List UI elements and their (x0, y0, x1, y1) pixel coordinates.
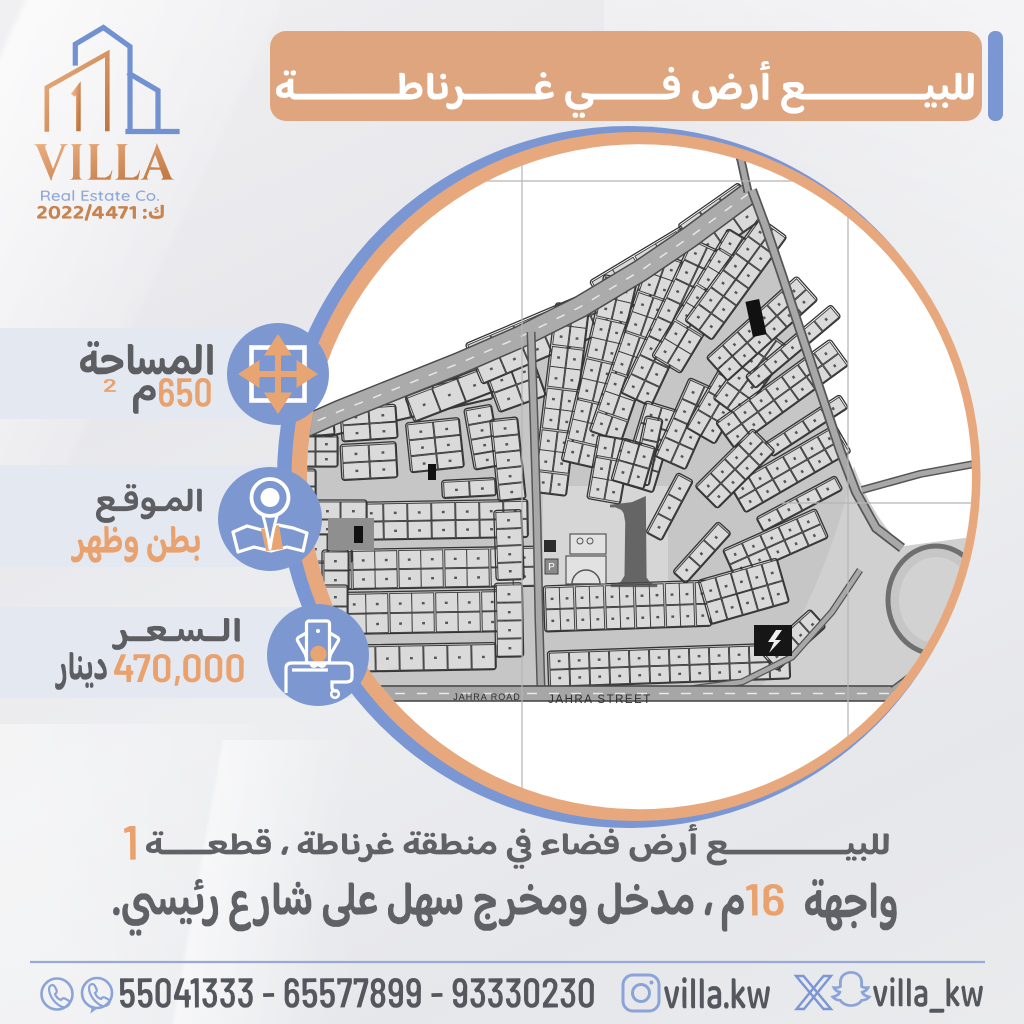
svg-text:JAHRA STREET: JAHRA STREET (548, 694, 652, 706)
svg-text:P: P (548, 562, 555, 573)
svg-text:JAHRA ROAD: JAHRA ROAD (453, 692, 521, 702)
